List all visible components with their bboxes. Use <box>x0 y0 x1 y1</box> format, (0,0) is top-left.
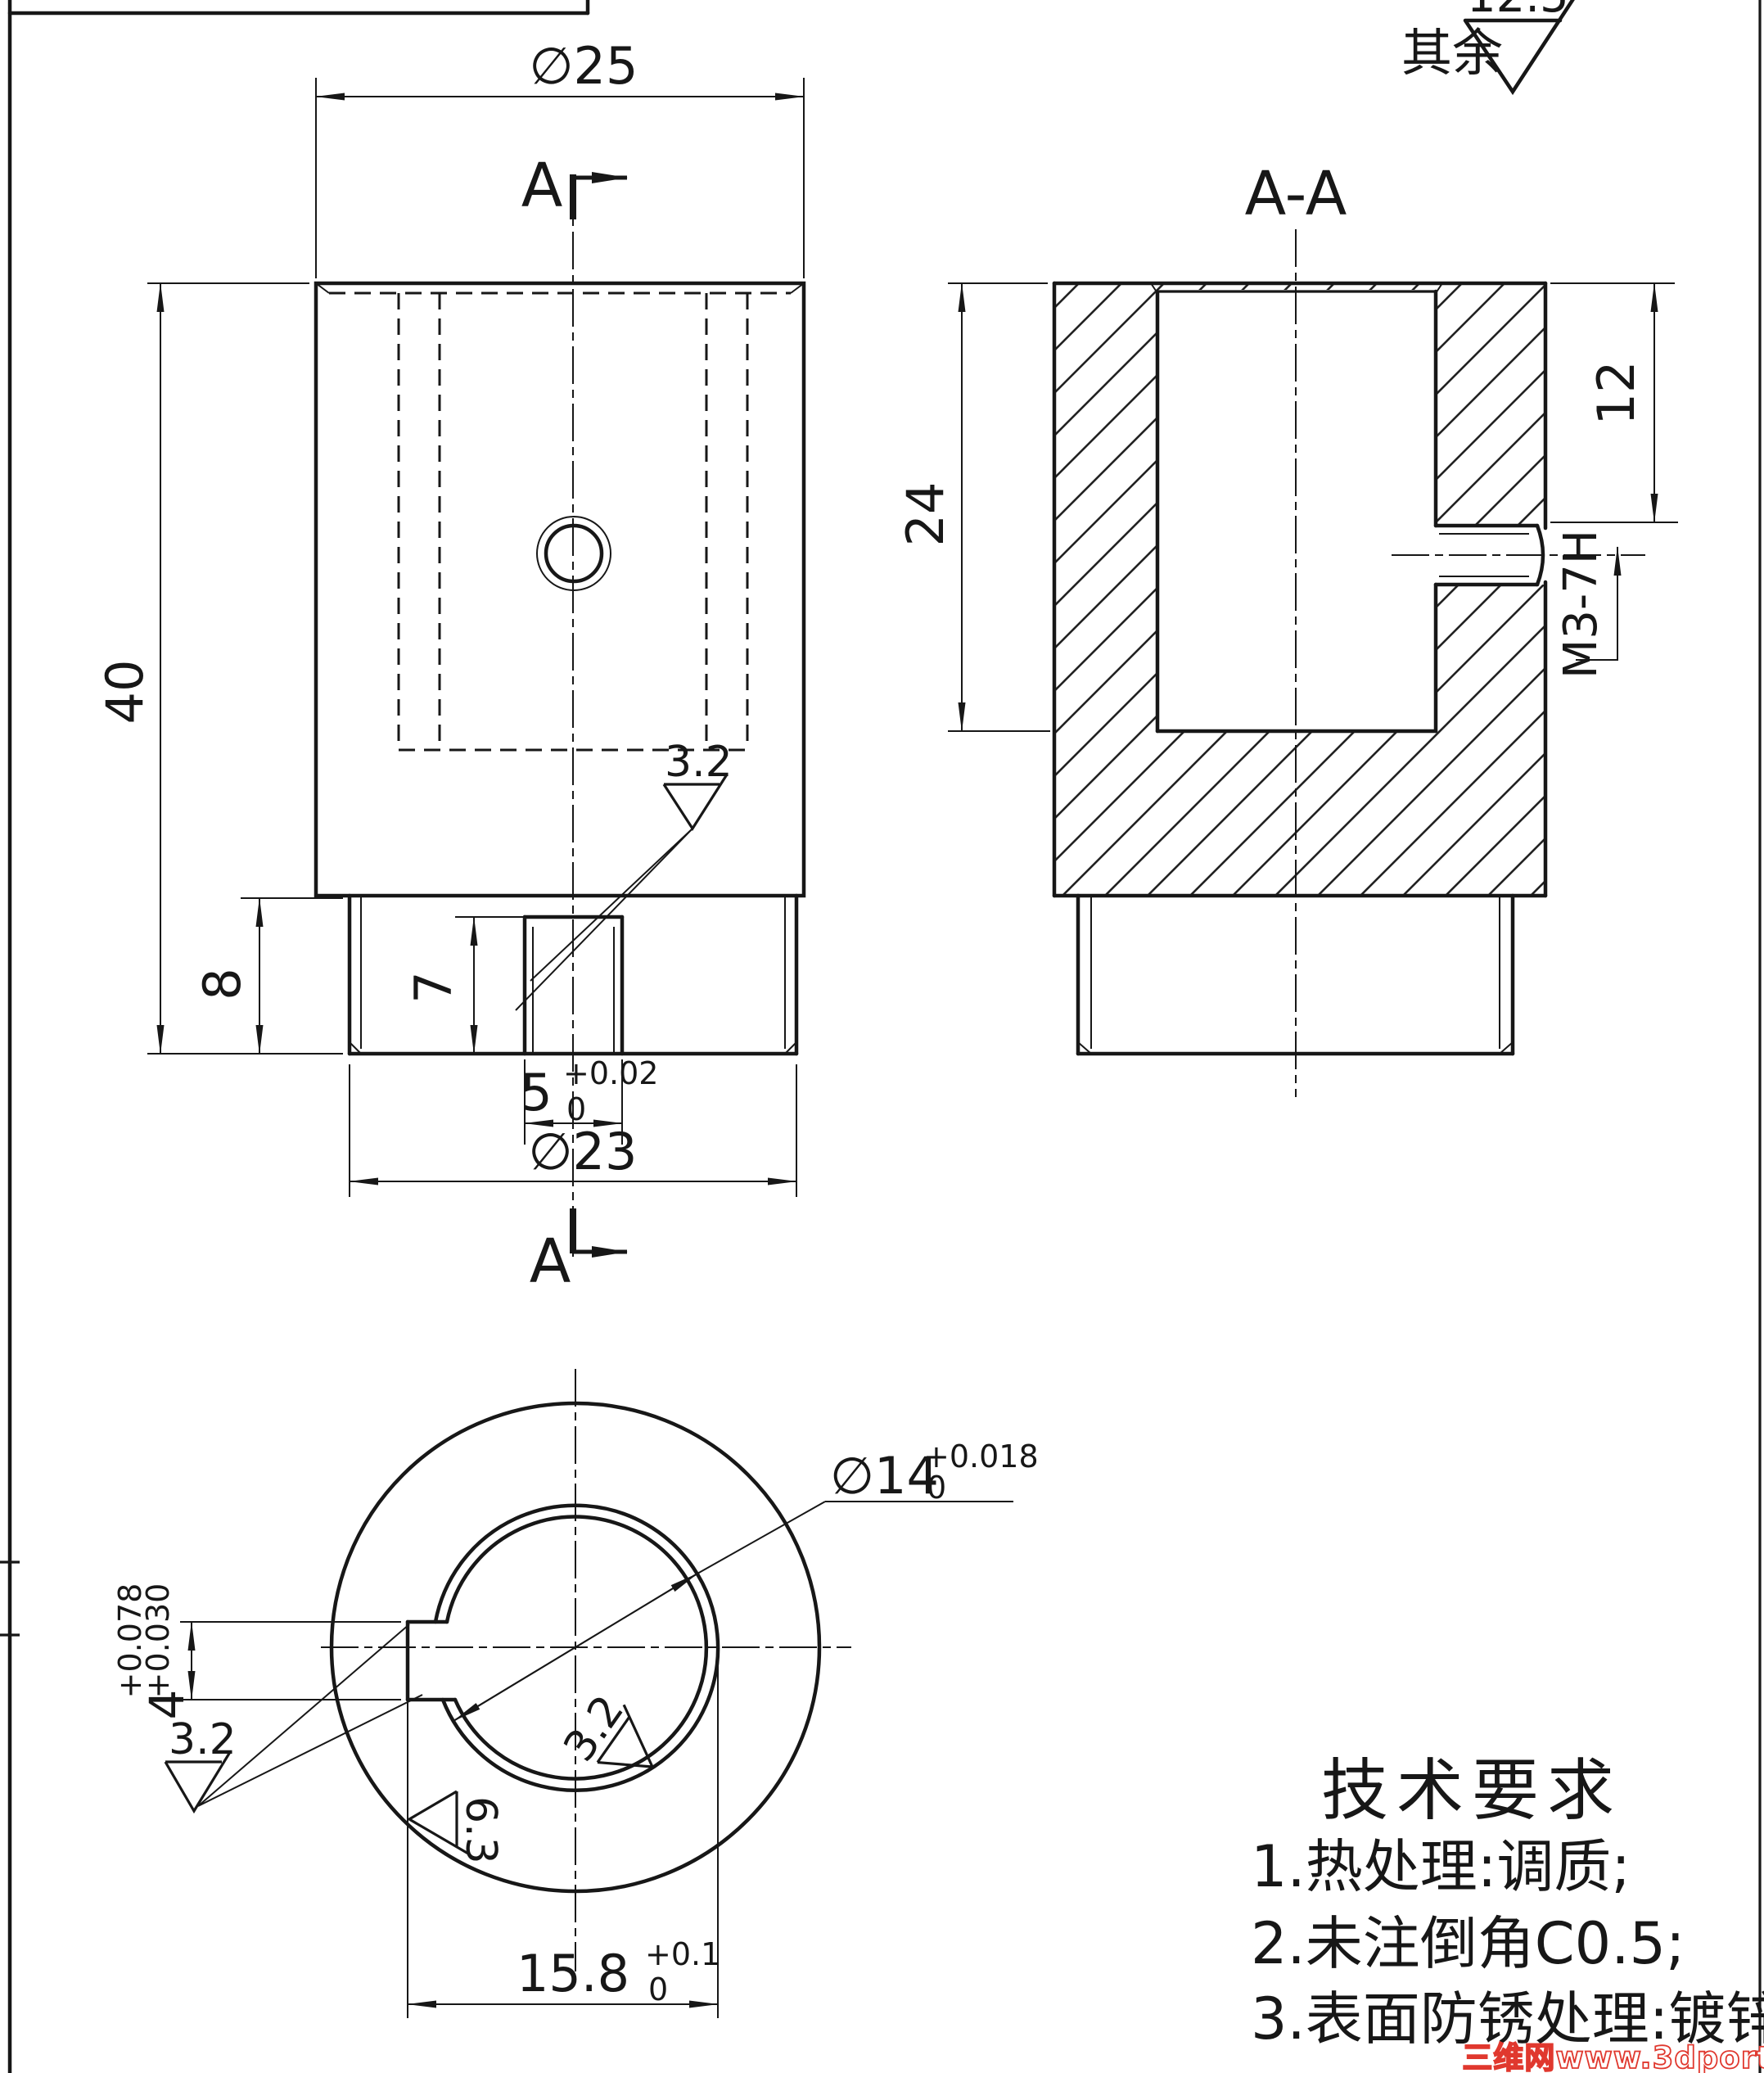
tech-requirements: 技术要求 1.热处理:调质; 2.未注倒角C0.5; 3.表面防锈处理:镀锌。 <box>1251 1752 1764 2053</box>
dim-4-tol-lower: +0.030 <box>140 1583 176 1699</box>
dim-5-text: 5 <box>520 1063 552 1122</box>
watermark: 三维网www.3dportal.cn <box>1462 2040 1764 2073</box>
dim-7: 7 <box>404 917 525 1054</box>
dim-40-text: 40 <box>95 660 155 725</box>
section-letter-bottom: A <box>530 1226 571 1297</box>
dim-15-8-tol-upper: +0.1 <box>645 1936 720 1972</box>
default-roughness-note: 其余 12.5 <box>1401 0 1581 92</box>
section-title: A-A <box>1245 159 1347 229</box>
dim-12-text: 12 <box>1586 361 1646 426</box>
dim-4: 4 +0.078 +0.030 <box>112 1583 401 1720</box>
dim-8: 8 <box>192 898 343 1054</box>
dim-8-text: 8 <box>192 968 252 1000</box>
dim-24-text: 24 <box>896 482 955 547</box>
tech-requirements-title: 技术要求 <box>1321 1752 1622 1830</box>
dim-15-8-tol-lower: 0 <box>648 1971 668 2008</box>
section-view: A-A <box>896 159 1678 1097</box>
dim-dia14-tol-lower: 0 <box>927 1470 946 1506</box>
drawing-canvas: 其余 12.5 <box>0 0 1764 2073</box>
dim-dia23-text: ∅23 <box>529 1122 638 1181</box>
dim-5-tol-upper: +0.02 <box>563 1055 658 1091</box>
dim-24: 24 <box>896 283 1050 731</box>
bottom-view: ∅14 +0.018 0 4 +0.078 +0.030 15.8 +0.1 0… <box>112 1369 1039 2018</box>
front-roughness-note: 3.2 <box>516 738 733 1010</box>
default-roughness-value: 12.5 <box>1467 0 1569 23</box>
dim-12: 12 <box>1550 283 1678 522</box>
roughness-symbol-icon <box>165 1752 230 1811</box>
section-letter-top: A <box>521 151 563 221</box>
front-view: A A ∅25 40 8 7 <box>95 36 804 1297</box>
dim-dia25-text: ∅25 <box>530 36 638 96</box>
keyway-outline <box>408 1622 455 1700</box>
thread-callout-text: M3-7H <box>1554 530 1608 679</box>
thread-callout: M3-7H <box>1554 530 1618 679</box>
keyway-roughness-note: 3.2 <box>165 1624 422 1811</box>
section-hatch <box>1054 283 1545 896</box>
tech-requirement-item-1: 1.热处理:调质; <box>1251 1833 1631 1900</box>
dim-15-8-text: 15.8 <box>517 1944 629 2003</box>
front-hidden-lines <box>329 293 791 750</box>
tech-requirement-item-2: 2.未注倒角C0.5; <box>1251 1910 1685 1977</box>
dim-7-text: 7 <box>404 971 463 1003</box>
bore-roughness-value: 3.2 <box>555 1687 634 1770</box>
outer-roughness-note: 6.3 <box>409 1791 505 1864</box>
outer-roughness-value: 6.3 <box>456 1796 505 1864</box>
section-cut-indicator-top: A <box>521 151 627 221</box>
front-outline <box>316 283 804 1054</box>
dim-dia14: ∅14 +0.018 0 <box>453 1438 1039 1721</box>
section-cut-indicator-bottom: A <box>530 1208 627 1297</box>
dim-dia14-text: ∅14 <box>830 1446 939 1506</box>
dim-40: 40 <box>95 283 343 1054</box>
dim-15-8: 15.8 +0.1 0 <box>408 1654 720 2018</box>
